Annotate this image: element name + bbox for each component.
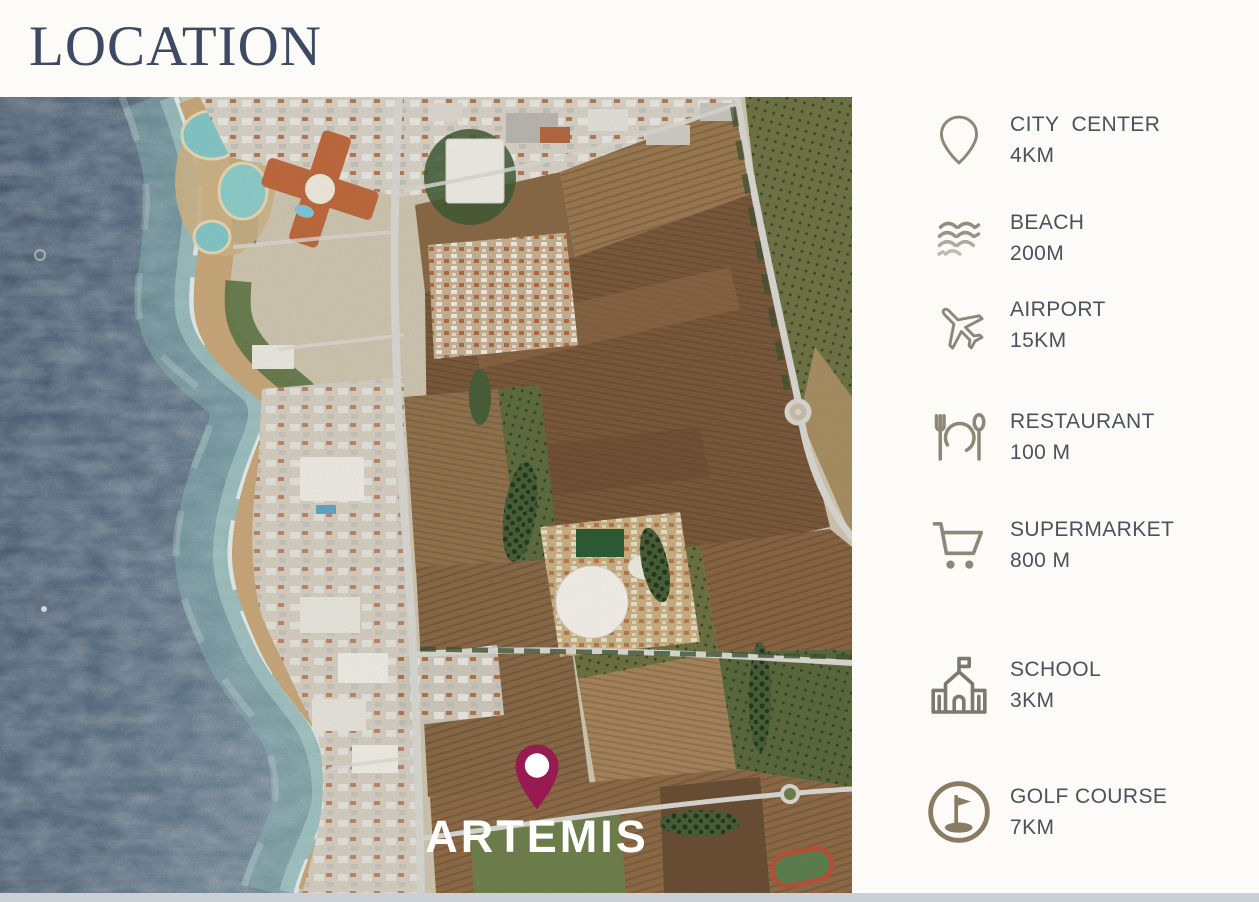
waves-icon bbox=[922, 212, 996, 264]
amenity-label: AIRPORT bbox=[1010, 298, 1106, 322]
amenity-label: SCHOOL bbox=[1010, 658, 1101, 682]
golf-icon bbox=[922, 778, 996, 846]
location-map: ARTEMIS bbox=[0, 97, 852, 893]
artemis-map-pin-icon bbox=[514, 743, 560, 811]
amenity-distance: 4KM bbox=[1010, 144, 1160, 168]
amenities-sidebar: CITY CENTER 4KM BEACH 200M bbox=[922, 0, 1259, 902]
school-icon bbox=[922, 649, 996, 721]
satellite-map-image bbox=[0, 97, 852, 893]
restaurant-icon bbox=[922, 407, 996, 467]
amenity-distance: 7KM bbox=[1010, 816, 1167, 840]
amenity-label: RESTAURANT bbox=[1010, 410, 1155, 434]
airplane-icon bbox=[922, 296, 996, 354]
amenity-city-center: CITY CENTER 4KM bbox=[922, 104, 1259, 176]
amenity-beach: BEACH 200M bbox=[922, 202, 1259, 274]
amenity-distance: 100 M bbox=[1010, 441, 1155, 465]
amenity-airport: AIRPORT 15KM bbox=[922, 289, 1259, 361]
shopping-cart-icon bbox=[922, 514, 996, 576]
amenity-supermarket: SUPERMARKET 800 M bbox=[922, 509, 1259, 581]
artemis-project-label: ARTEMIS bbox=[397, 811, 677, 863]
amenity-label: GOLF COURSE bbox=[1010, 785, 1167, 809]
location-page: LOCATION bbox=[0, 0, 1259, 902]
amenity-distance: 15KM bbox=[1010, 329, 1106, 353]
amenity-golf: GOLF COURSE 7KM bbox=[922, 776, 1259, 848]
amenity-label: BEACH bbox=[1010, 211, 1084, 235]
amenity-label: CITY CENTER bbox=[1010, 113, 1160, 137]
amenity-distance: 3KM bbox=[1010, 689, 1101, 713]
amenity-distance: 200M bbox=[1010, 242, 1084, 266]
map-pin-icon bbox=[922, 107, 996, 173]
amenity-distance: 800 M bbox=[1010, 549, 1174, 573]
page-title: LOCATION bbox=[29, 14, 322, 79]
amenity-label: SUPERMARKET bbox=[1010, 518, 1174, 542]
amenity-school: SCHOOL 3KM bbox=[922, 649, 1259, 721]
amenity-restaurant: RESTAURANT 100 M bbox=[922, 401, 1259, 473]
